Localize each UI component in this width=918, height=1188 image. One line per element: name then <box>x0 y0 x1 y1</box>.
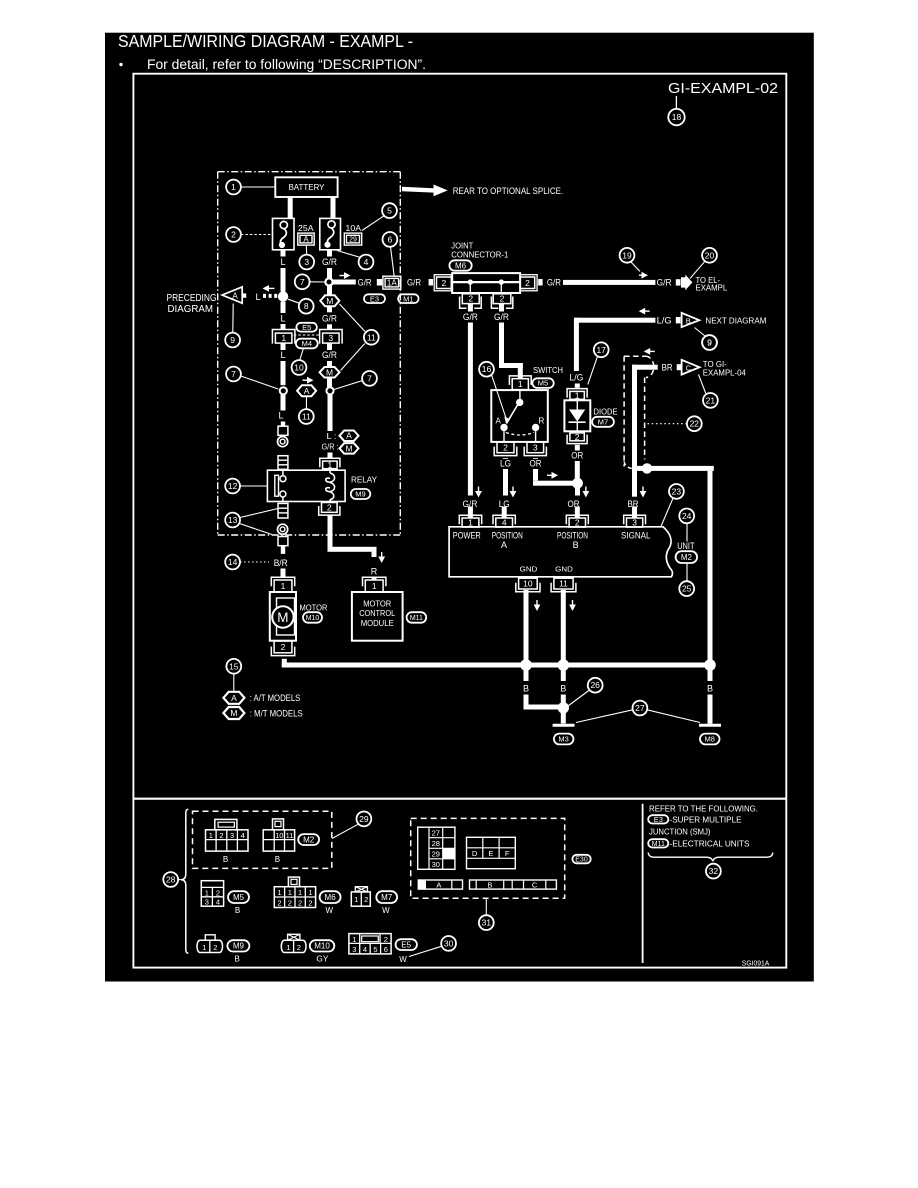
svg-text:3: 3 <box>352 945 356 954</box>
svg-text:2: 2 <box>231 229 236 239</box>
svg-text:GND: GND <box>520 565 538 574</box>
svg-text:2: 2 <box>308 899 312 908</box>
svg-text:L/G: L/G <box>569 372 583 382</box>
svg-text:11: 11 <box>286 831 294 840</box>
svg-text:W: W <box>326 906 334 915</box>
svg-text:MODULE: MODULE <box>361 618 394 628</box>
svg-text:12: 12 <box>228 481 238 491</box>
svg-text:2: 2 <box>277 899 281 908</box>
svg-text:-SUPER MULTIPLE: -SUPER MULTIPLE <box>670 814 742 824</box>
svg-text:2: 2 <box>503 442 508 452</box>
svg-text:2: 2 <box>575 432 580 442</box>
svg-text:E: E <box>488 849 493 858</box>
svg-text:30: 30 <box>444 938 454 948</box>
svg-text:2: 2 <box>219 831 223 840</box>
svg-text:26: 26 <box>590 680 600 690</box>
svg-text:6: 6 <box>388 234 393 244</box>
svg-text:2: 2 <box>297 943 301 952</box>
svg-text:SAMPLE/WIRING DIAGRAM - EXAMPL: SAMPLE/WIRING DIAGRAM - EXAMPL - <box>118 31 413 51</box>
svg-text:6: 6 <box>384 945 388 954</box>
svg-text:G/R: G/R <box>407 278 421 289</box>
svg-text:E5: E5 <box>401 940 411 949</box>
svg-text:17: 17 <box>596 345 606 355</box>
svg-text:21: 21 <box>706 395 716 405</box>
svg-text:L: L <box>280 350 285 360</box>
svg-text:2: 2 <box>281 642 286 652</box>
svg-text:20: 20 <box>705 250 715 260</box>
svg-text:32: 32 <box>709 866 719 876</box>
svg-text:29: 29 <box>349 237 357 244</box>
svg-text:GI-EXAMPL-02: GI-EXAMPL-02 <box>668 80 778 97</box>
svg-text:29: 29 <box>432 850 440 859</box>
svg-text:25: 25 <box>682 584 692 594</box>
svg-text:SIGNAL: SIGNAL <box>621 531 651 541</box>
svg-text:3: 3 <box>205 898 209 907</box>
svg-text:1: 1 <box>277 888 281 897</box>
svg-text:M: M <box>230 708 237 718</box>
svg-text:M9: M9 <box>355 490 365 499</box>
svg-text:BATTERY: BATTERY <box>289 182 325 192</box>
svg-text:M: M <box>326 367 333 377</box>
svg-text:MOTOR: MOTOR <box>363 599 391 609</box>
svg-text:23: 23 <box>672 486 682 496</box>
svg-text:4: 4 <box>241 831 245 840</box>
svg-text:30: 30 <box>432 860 440 869</box>
svg-text:POWER: POWER <box>453 531 481 541</box>
svg-text:1: 1 <box>202 943 206 952</box>
svg-text:M2: M2 <box>303 835 315 844</box>
svg-text:1: 1 <box>281 581 286 591</box>
svg-text:REFER TO THE FOLLOWING.: REFER TO THE FOLLOWING. <box>649 804 758 814</box>
svg-text:G/R: G/R <box>322 314 337 324</box>
svg-text:29: 29 <box>359 814 369 824</box>
svg-text:7: 7 <box>300 277 305 287</box>
svg-text:G/R: G/R <box>358 278 372 289</box>
svg-text:L: L <box>278 411 283 421</box>
svg-text:1: 1 <box>205 888 209 897</box>
svg-text:For detail, refer to following: For detail, refer to following “DESCRIPT… <box>147 57 426 72</box>
svg-text:B/R: B/R <box>274 558 288 568</box>
svg-text:1A: 1A <box>387 278 397 287</box>
svg-text:M5: M5 <box>538 379 548 388</box>
svg-text:GY: GY <box>316 954 329 963</box>
svg-text:B: B <box>707 684 713 694</box>
svg-text:A: A <box>232 292 238 301</box>
svg-text:M10: M10 <box>314 942 330 951</box>
svg-text:9: 9 <box>230 335 235 345</box>
svg-text:OR: OR <box>571 451 583 461</box>
svg-text:A: A <box>303 235 309 244</box>
svg-text:14: 14 <box>228 557 238 567</box>
svg-text:M6: M6 <box>455 261 467 270</box>
svg-text:SWITCH: SWITCH <box>533 366 563 375</box>
svg-text:8: 8 <box>304 301 309 311</box>
svg-text:11: 11 <box>367 332 376 342</box>
svg-text:G/R: G/R <box>547 278 561 289</box>
svg-text:RELAY: RELAY <box>351 476 378 485</box>
svg-text:2: 2 <box>442 278 447 288</box>
svg-text:2: 2 <box>500 294 505 304</box>
svg-text:M5: M5 <box>233 893 245 902</box>
svg-text:L: L <box>280 314 285 324</box>
svg-text:C: C <box>686 363 692 372</box>
svg-text:G/R: G/R <box>322 350 337 360</box>
svg-text:11: 11 <box>302 411 311 421</box>
svg-text:1: 1 <box>308 888 312 897</box>
svg-text:10: 10 <box>294 362 304 372</box>
svg-text:NEXT DIAGRAM: NEXT DIAGRAM <box>705 315 766 325</box>
svg-text:A: A <box>304 386 310 396</box>
svg-text:M1: M1 <box>403 294 413 303</box>
svg-text:2: 2 <box>288 899 292 908</box>
svg-text:D: D <box>472 849 478 858</box>
svg-text:4: 4 <box>216 898 220 907</box>
svg-text:7: 7 <box>367 373 372 383</box>
svg-text:1: 1 <box>298 888 302 897</box>
svg-text:L: L <box>280 257 285 267</box>
svg-text:1: 1 <box>209 831 213 840</box>
svg-text:E3: E3 <box>370 294 379 303</box>
svg-text:E30: E30 <box>575 856 588 863</box>
svg-text:2: 2 <box>364 895 368 904</box>
svg-text:1: 1 <box>575 390 580 400</box>
svg-text:19: 19 <box>622 250 632 260</box>
svg-text:9: 9 <box>707 337 712 347</box>
svg-text:2: 2 <box>468 294 473 304</box>
svg-text:1: 1 <box>286 943 290 952</box>
svg-text:M10: M10 <box>306 615 320 622</box>
svg-text:UNIT: UNIT <box>677 541 695 551</box>
svg-text:CONNECTOR-1: CONNECTOR-1 <box>451 251 509 260</box>
svg-text:E3: E3 <box>654 815 663 824</box>
svg-text:M7: M7 <box>598 417 608 426</box>
svg-text:M: M <box>326 296 333 306</box>
svg-text:28: 28 <box>166 874 176 884</box>
svg-text:A: A <box>496 417 502 426</box>
svg-text:M8: M8 <box>704 735 714 744</box>
svg-text:DIODE: DIODE <box>594 408 618 417</box>
svg-text:JOINT: JOINT <box>451 242 473 251</box>
svg-text:A: A <box>346 431 352 441</box>
svg-text:JUNCTION (SMJ): JUNCTION (SMJ) <box>649 827 711 837</box>
svg-text:R: R <box>371 567 378 577</box>
svg-text:24: 24 <box>682 511 692 521</box>
svg-text:W: W <box>382 906 390 915</box>
svg-text:EXAMPL-04: EXAMPL-04 <box>703 368 747 377</box>
svg-text:POSITION: POSITION <box>557 531 588 541</box>
svg-text:10A: 10A <box>346 224 362 233</box>
svg-text:B: B <box>275 855 280 864</box>
svg-text:G/R: G/R <box>463 312 478 322</box>
svg-text:LG: LG <box>500 459 511 469</box>
svg-text:28: 28 <box>432 839 440 848</box>
svg-text:2: 2 <box>298 899 302 908</box>
svg-text:10: 10 <box>523 579 533 589</box>
svg-text:1: 1 <box>328 460 333 470</box>
svg-text:: M/T MODELS: : M/T MODELS <box>250 708 303 719</box>
svg-text:5: 5 <box>387 206 392 216</box>
svg-text:F: F <box>505 849 510 858</box>
svg-text:M: M <box>345 443 352 453</box>
svg-text:L/G: L/G <box>657 316 672 327</box>
svg-text:OR: OR <box>530 459 542 469</box>
svg-text:G/R: G/R <box>494 312 509 322</box>
svg-text:31: 31 <box>482 918 492 928</box>
svg-text:G/R: G/R <box>322 257 337 267</box>
svg-text:3: 3 <box>328 333 333 343</box>
svg-text:5: 5 <box>373 945 377 954</box>
svg-text:B: B <box>573 540 579 550</box>
svg-text:M2: M2 <box>681 553 693 562</box>
svg-text:16: 16 <box>482 364 492 374</box>
svg-text:B: B <box>223 855 228 864</box>
svg-text:M3: M3 <box>558 735 568 744</box>
svg-text:3: 3 <box>533 442 538 452</box>
svg-text:M4: M4 <box>302 339 312 348</box>
svg-text:27: 27 <box>635 703 645 713</box>
svg-text:CONTROL: CONTROL <box>359 608 395 618</box>
svg-text:DIAGRAM: DIAGRAM <box>168 303 214 315</box>
svg-text:B: B <box>686 316 691 325</box>
svg-text:A: A <box>501 540 507 550</box>
svg-text:R: R <box>539 417 545 426</box>
svg-text:L :: L : <box>327 432 337 441</box>
svg-text:B: B <box>523 684 529 694</box>
svg-text:1: 1 <box>354 895 358 904</box>
svg-text:M: M <box>277 610 288 625</box>
svg-text:25A: 25A <box>298 224 314 233</box>
svg-text:7: 7 <box>231 369 236 379</box>
svg-text:G/R: G/R <box>657 278 672 289</box>
svg-text:1: 1 <box>372 581 377 591</box>
svg-text:1: 1 <box>281 333 286 343</box>
svg-text:E5: E5 <box>302 323 311 332</box>
svg-text:22: 22 <box>690 419 700 429</box>
svg-text:3: 3 <box>304 257 309 267</box>
svg-text:1: 1 <box>231 182 236 192</box>
svg-text:-ELECTRICAL UNITS: -ELECTRICAL UNITS <box>670 838 750 848</box>
svg-text:W: W <box>399 955 407 964</box>
svg-text:B: B <box>487 880 492 889</box>
svg-text:10: 10 <box>275 831 283 840</box>
svg-text:27: 27 <box>432 829 440 838</box>
svg-text:B: B <box>235 906 240 915</box>
svg-text:18: 18 <box>672 112 682 122</box>
svg-text:2: 2 <box>327 502 332 512</box>
svg-text:B: B <box>235 954 240 963</box>
svg-text:1: 1 <box>518 379 523 389</box>
svg-text:2: 2 <box>384 935 388 944</box>
svg-text:13: 13 <box>228 515 238 525</box>
svg-text:MOTOR: MOTOR <box>300 603 328 613</box>
svg-text:11: 11 <box>559 579 568 589</box>
svg-text:1: 1 <box>352 935 356 944</box>
svg-text:3: 3 <box>230 831 234 840</box>
svg-text:4: 4 <box>363 945 367 954</box>
svg-text:A: A <box>231 693 237 703</box>
svg-text:2: 2 <box>216 888 220 897</box>
svg-text:C: C <box>532 880 538 889</box>
svg-text:REAR TO OPTIONAL SPLICE.: REAR TO OPTIONAL SPLICE. <box>453 186 564 197</box>
svg-text:: A/T MODELS: : A/T MODELS <box>250 693 301 704</box>
svg-text:L: L <box>256 292 261 303</box>
svg-text:G/R :: G/R : <box>322 443 339 452</box>
svg-text:EXAMPL: EXAMPL <box>696 284 728 293</box>
svg-text:M7: M7 <box>381 893 393 902</box>
svg-text:M6: M6 <box>325 893 337 902</box>
svg-text:B: B <box>560 684 566 694</box>
svg-text:1: 1 <box>288 888 292 897</box>
svg-text:A: A <box>436 880 441 889</box>
svg-text:2: 2 <box>525 278 530 288</box>
svg-text:15: 15 <box>229 661 239 671</box>
svg-text:SGI091A: SGI091A <box>742 961 770 968</box>
svg-text:BR: BR <box>662 363 673 374</box>
svg-text:M11: M11 <box>410 615 423 622</box>
svg-text:GND: GND <box>555 565 573 574</box>
svg-text:M9: M9 <box>233 942 245 951</box>
svg-text:M11: M11 <box>652 841 665 848</box>
svg-text:4: 4 <box>364 257 369 267</box>
svg-text:POSITION: POSITION <box>492 531 523 541</box>
svg-text:2: 2 <box>213 943 217 952</box>
